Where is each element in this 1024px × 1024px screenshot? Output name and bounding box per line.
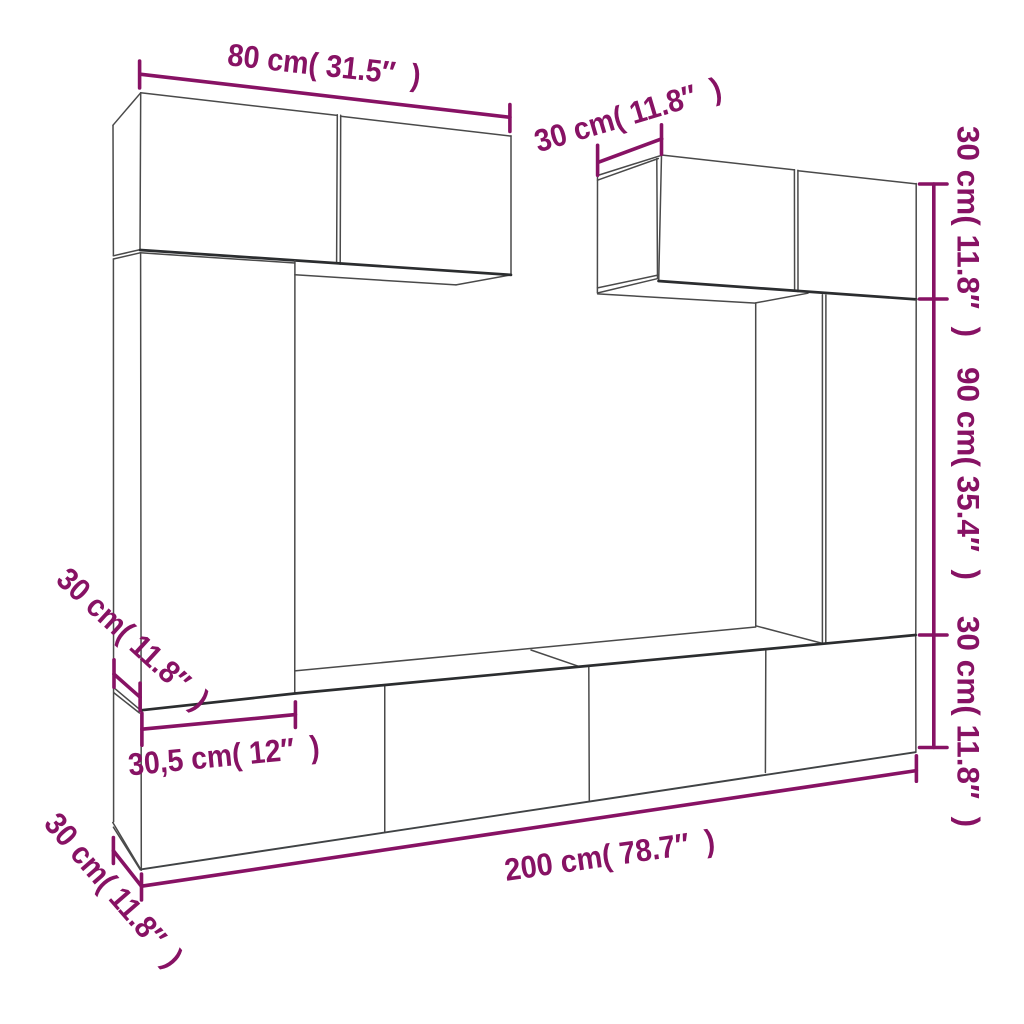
svg-text:80 cm( 31.5″ ): 80 cm( 31.5″ ) [226, 36, 423, 93]
svg-text:90 cm( 35.4″ ): 90 cm( 35.4″ ) [951, 367, 987, 580]
svg-text:30 cm( 11.8″ ): 30 cm( 11.8″ ) [951, 616, 987, 827]
svg-text:30,5 cm( 12″ ): 30,5 cm( 12″ ) [126, 728, 321, 782]
svg-text:200 cm( 78.7″ ): 200 cm( 78.7″ ) [502, 822, 717, 888]
svg-text:30 cm( 11.8″ ): 30 cm( 11.8″ ) [37, 805, 190, 974]
svg-text:30 cm( 11.8″ ): 30 cm( 11.8″ ) [951, 126, 987, 337]
svg-text:30 cm( 11.8″ ): 30 cm( 11.8″ ) [530, 70, 725, 159]
